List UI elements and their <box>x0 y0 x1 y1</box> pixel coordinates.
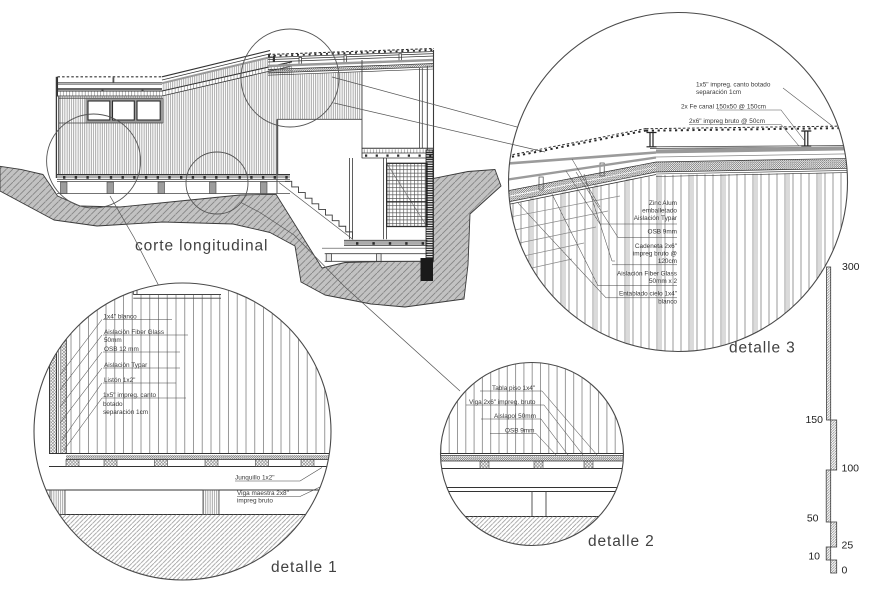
svg-text:2x6" impreg bruto @ 50cm: 2x6" impreg bruto @ 50cm <box>689 118 765 125</box>
svg-text:Zinc Alum: Zinc Alum <box>649 200 677 207</box>
svg-text:Junquillo 1x2": Junquillo 1x2" <box>235 475 275 482</box>
svg-text:120cm: 120cm <box>658 258 677 265</box>
svg-text:50: 50 <box>807 513 819 525</box>
svg-text:detalle 3: detalle 3 <box>729 340 796 357</box>
svg-text:150: 150 <box>805 414 823 426</box>
svg-text:separación 1cm: separación 1cm <box>696 89 741 96</box>
svg-text:botado: botado <box>103 401 123 408</box>
svg-text:blanco: blanco <box>658 298 677 305</box>
svg-text:2x Fe canal 150x50 @ 150cm: 2x Fe canal 150x50 @ 150cm <box>681 104 766 111</box>
svg-text:separación 1cm: separación 1cm <box>103 409 148 416</box>
svg-text:0: 0 <box>842 565 848 577</box>
svg-text:impreg bruto @: impreg bruto @ <box>633 250 677 257</box>
svg-text:OSB 9mm: OSB 9mm <box>648 228 677 235</box>
svg-text:50mm: 50mm <box>104 337 122 344</box>
svg-text:1x5" impreg. canto botado: 1x5" impreg. canto botado <box>696 82 771 89</box>
svg-text:emballetado: emballetado <box>642 207 677 214</box>
svg-text:corte longitudinal: corte longitudinal <box>135 238 268 255</box>
svg-text:Aislación Fiber Glass: Aislación Fiber Glass <box>617 271 677 278</box>
svg-text:Cadeneta 2x6": Cadeneta 2x6" <box>635 243 677 250</box>
svg-text:impreg bruto: impreg bruto <box>237 498 273 505</box>
svg-text:detalle 2: detalle 2 <box>588 533 655 550</box>
svg-text:detalle 1: detalle 1 <box>271 559 338 576</box>
svg-text:10: 10 <box>808 551 820 563</box>
svg-text:300: 300 <box>842 261 860 273</box>
svg-text:50mm x 2: 50mm x 2 <box>649 278 678 285</box>
svg-text:Aislación Typar: Aislación Typar <box>634 215 678 222</box>
svg-text:Entablado cielo 1x4": Entablado cielo 1x4" <box>619 291 677 298</box>
svg-text:100: 100 <box>842 463 860 475</box>
svg-text:Viga maestra 2x8": Viga maestra 2x8" <box>237 490 289 497</box>
svg-text:25: 25 <box>842 540 854 552</box>
